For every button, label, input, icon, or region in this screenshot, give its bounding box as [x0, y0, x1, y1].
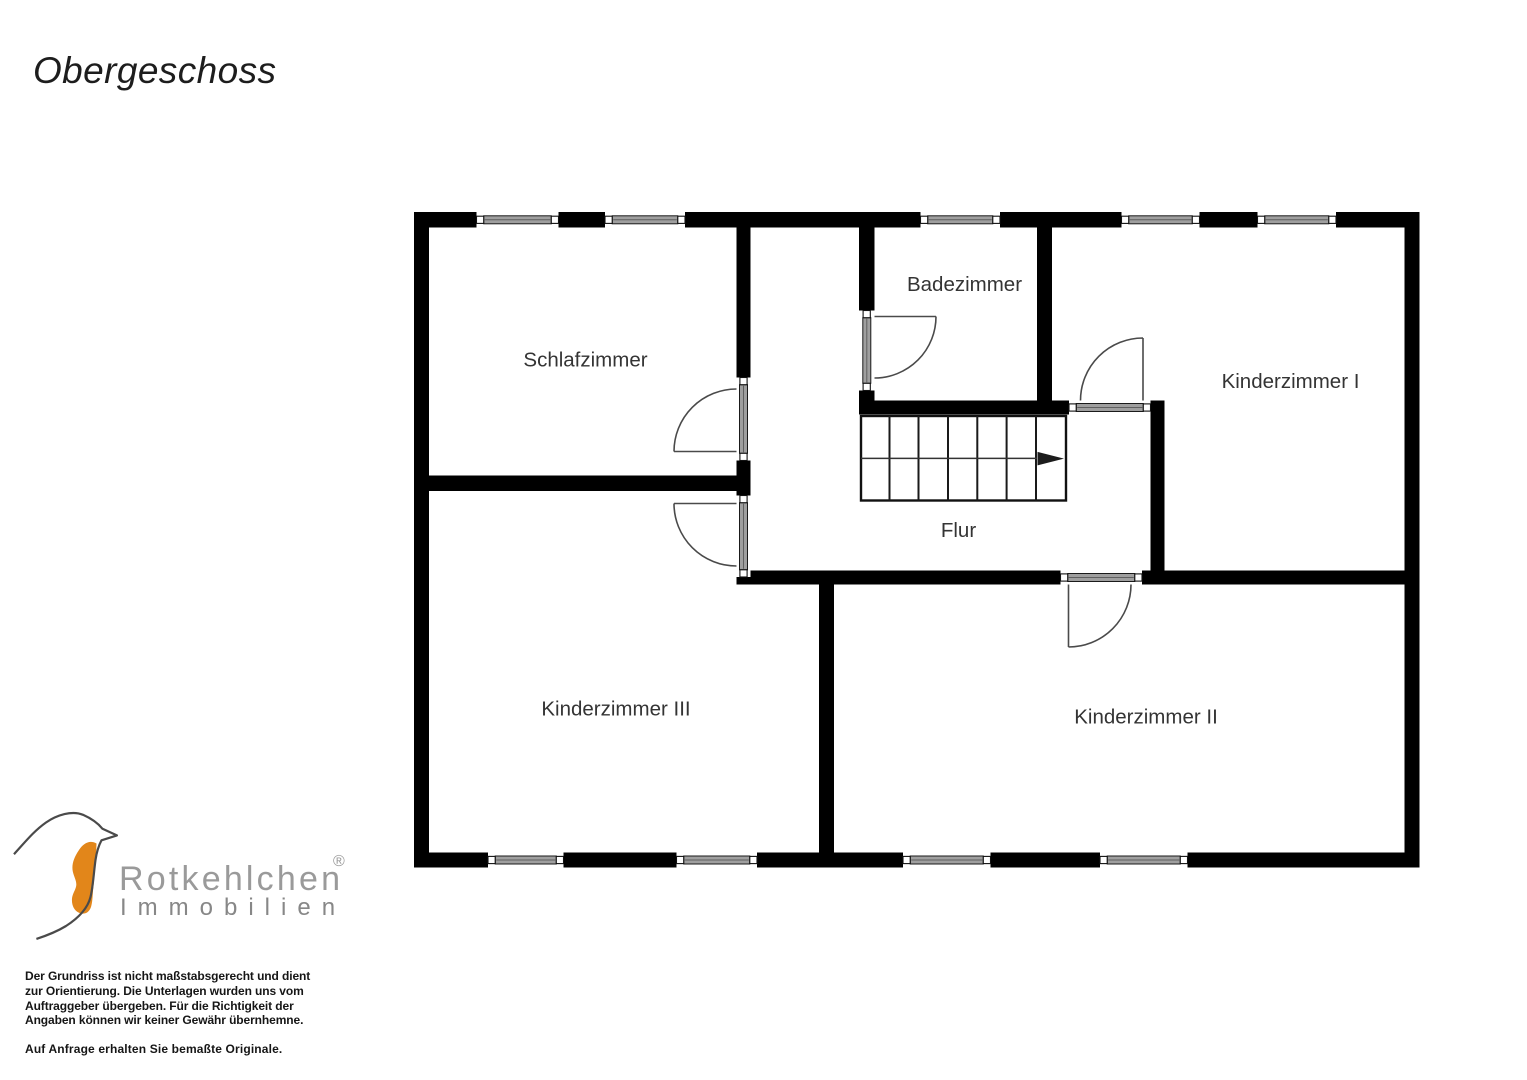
- svg-text:Badezimmer: Badezimmer: [907, 273, 1022, 296]
- svg-text:Flur: Flur: [941, 519, 976, 542]
- svg-text:Kinderzimmer III: Kinderzimmer III: [541, 698, 690, 721]
- svg-text:Kinderzimmer I: Kinderzimmer I: [1222, 370, 1360, 393]
- svg-text:Kinderzimmer II: Kinderzimmer II: [1074, 706, 1218, 729]
- svg-text:Schlafzimmer: Schlafzimmer: [523, 349, 647, 372]
